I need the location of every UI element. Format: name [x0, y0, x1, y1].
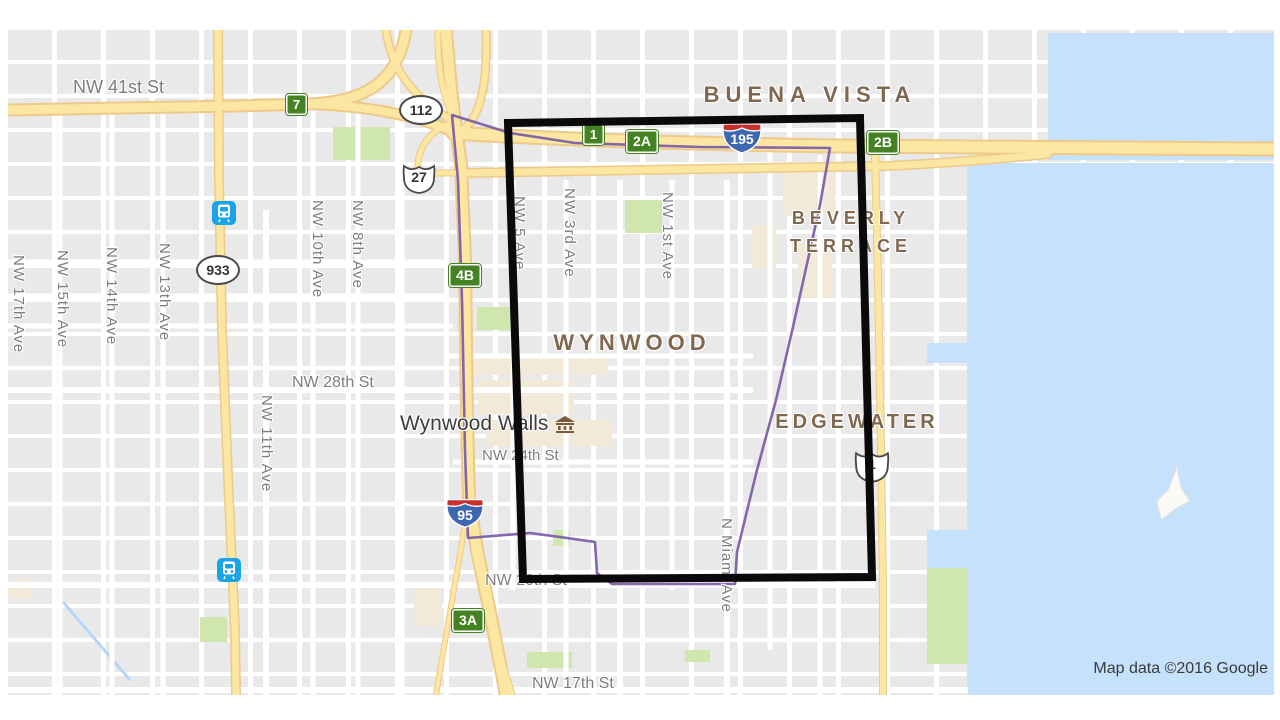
neighborhood-label-buena-vista: BUENA VISTA — [704, 82, 917, 108]
street-label-nw-24th: NW 24th St — [482, 447, 559, 464]
transit-station-icon[interactable] — [217, 558, 241, 582]
interstate-shield-195: 195 — [718, 122, 766, 154]
us-route-shield-27-number: 27 — [401, 169, 437, 185]
street-label-nw-28th: NW 28th St — [292, 374, 374, 392]
water-biscayne-bay — [927, 33, 1274, 695]
exit-shield-2b: 2B — [867, 131, 899, 154]
avenue-label-nw-1st: NW 1st Ave — [659, 192, 676, 280]
avenue-label-nw-8th: NW 8th Ave — [349, 200, 366, 289]
stream — [63, 602, 130, 680]
poi-wynwood-walls[interactable]: Wynwood Walls — [400, 412, 576, 436]
interstate-shield-95: 95 — [444, 495, 486, 531]
arterial-streets — [8, 105, 968, 695]
street-label-nw-17th: NW 17th St — [532, 675, 614, 693]
transit-station-icon[interactable] — [212, 201, 236, 225]
neighborhood-label-edgewater: EDGEWATER — [775, 411, 938, 434]
interstate-shield-95-number: 95 — [444, 507, 486, 523]
avenue-label-nw-3rd: NW 3rd Ave — [561, 188, 578, 278]
street-label-nw-41st: NW 41st St — [73, 77, 164, 98]
exit-shield-1: 1 — [583, 124, 604, 145]
avenue-label-nw-11th: NW 11th Ave — [258, 395, 275, 492]
commercial-areas — [8, 170, 835, 626]
us-route-shield-27: 27 — [401, 163, 437, 195]
exit-shield-4b: 4B — [449, 264, 481, 287]
map-attribution: Map data ©2016 Google — [1093, 660, 1268, 678]
street-label-nw-20th: NW 20th St — [485, 572, 567, 590]
exit-shield-7: 7 — [286, 94, 307, 115]
neighborhood-label-beverly: BEVERLY — [792, 208, 910, 229]
avenue-label-n-miami: N Miami Ave — [718, 518, 735, 613]
route-shield-112: 112 — [399, 95, 443, 125]
museum-icon — [554, 415, 576, 433]
neighborhood-label-terrace: TERRACE — [790, 236, 912, 257]
us-route-shield-1-number: 1 — [853, 456, 891, 472]
avenue-label-nw-15th: NW 15th Ave — [54, 250, 71, 348]
exit-shield-2a: 2A — [626, 130, 658, 153]
avenue-label-nw-17th: NW 17th Ave — [10, 255, 27, 353]
island — [1157, 467, 1190, 520]
avenue-label-nw-10th: NW 10th Ave — [309, 200, 326, 298]
poi-wynwood-walls-label: Wynwood Walls — [400, 412, 548, 436]
map-canvas[interactable]: NW 41st St NW 28th St NW 24th St NW 20th… — [8, 30, 1274, 695]
avenue-label-nw-14th: NW 14th Ave — [103, 247, 120, 345]
us-route-shield-1: 1 — [853, 450, 891, 484]
interstate-shield-195-number: 195 — [718, 131, 766, 147]
neighborhood-label-wynwood: WYNWOOD — [553, 330, 710, 356]
exit-shield-3a: 3A — [452, 609, 484, 632]
avenue-label-nw-5th: NW 5 Ave — [511, 196, 528, 270]
route-shield-933: 933 — [196, 255, 240, 285]
avenue-label-nw-13th: NW 13th Ave — [156, 243, 173, 341]
